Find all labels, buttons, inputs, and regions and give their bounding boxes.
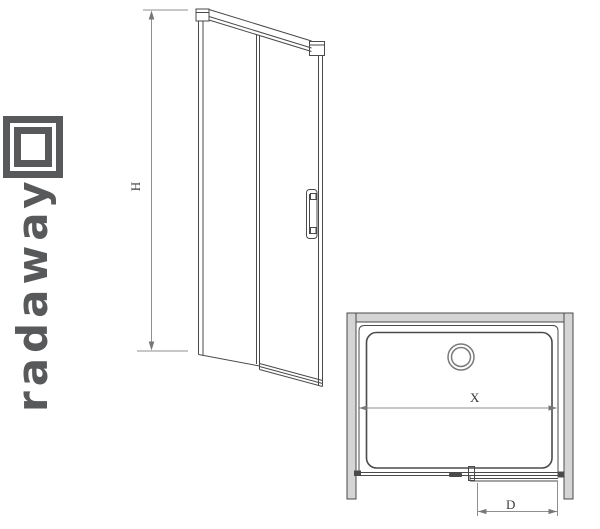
height-dimension-label: H bbox=[129, 182, 142, 191]
sliding-panel-divider bbox=[257, 35, 260, 366]
door-opening-dimension-line bbox=[478, 481, 558, 516]
walls bbox=[347, 313, 573, 499]
width-dimension-label: X bbox=[470, 391, 479, 404]
right-wall bbox=[564, 313, 573, 499]
bottom-track bbox=[260, 364, 323, 387]
door-frame bbox=[196, 9, 325, 387]
left-wall-bracket bbox=[354, 471, 361, 477]
plan-view-drawing bbox=[347, 313, 573, 516]
front-view-drawing bbox=[137, 9, 325, 387]
top-right-cap bbox=[310, 42, 325, 56]
door-handle bbox=[307, 190, 318, 239]
door-opening-dimension-label: D bbox=[506, 498, 515, 511]
top-wall bbox=[347, 313, 573, 322]
width-dimension-line bbox=[359, 405, 557, 410]
roller-carriage bbox=[449, 473, 462, 477]
height-dimension-line bbox=[137, 10, 188, 351]
shower-tray bbox=[367, 333, 553, 469]
top-left-cap bbox=[196, 9, 209, 21]
radaway-technical-diagram: radaway bbox=[0, 0, 600, 529]
diagram-canvas bbox=[0, 0, 600, 529]
drain-icon bbox=[448, 344, 474, 370]
right-wall-bracket bbox=[558, 472, 565, 478]
